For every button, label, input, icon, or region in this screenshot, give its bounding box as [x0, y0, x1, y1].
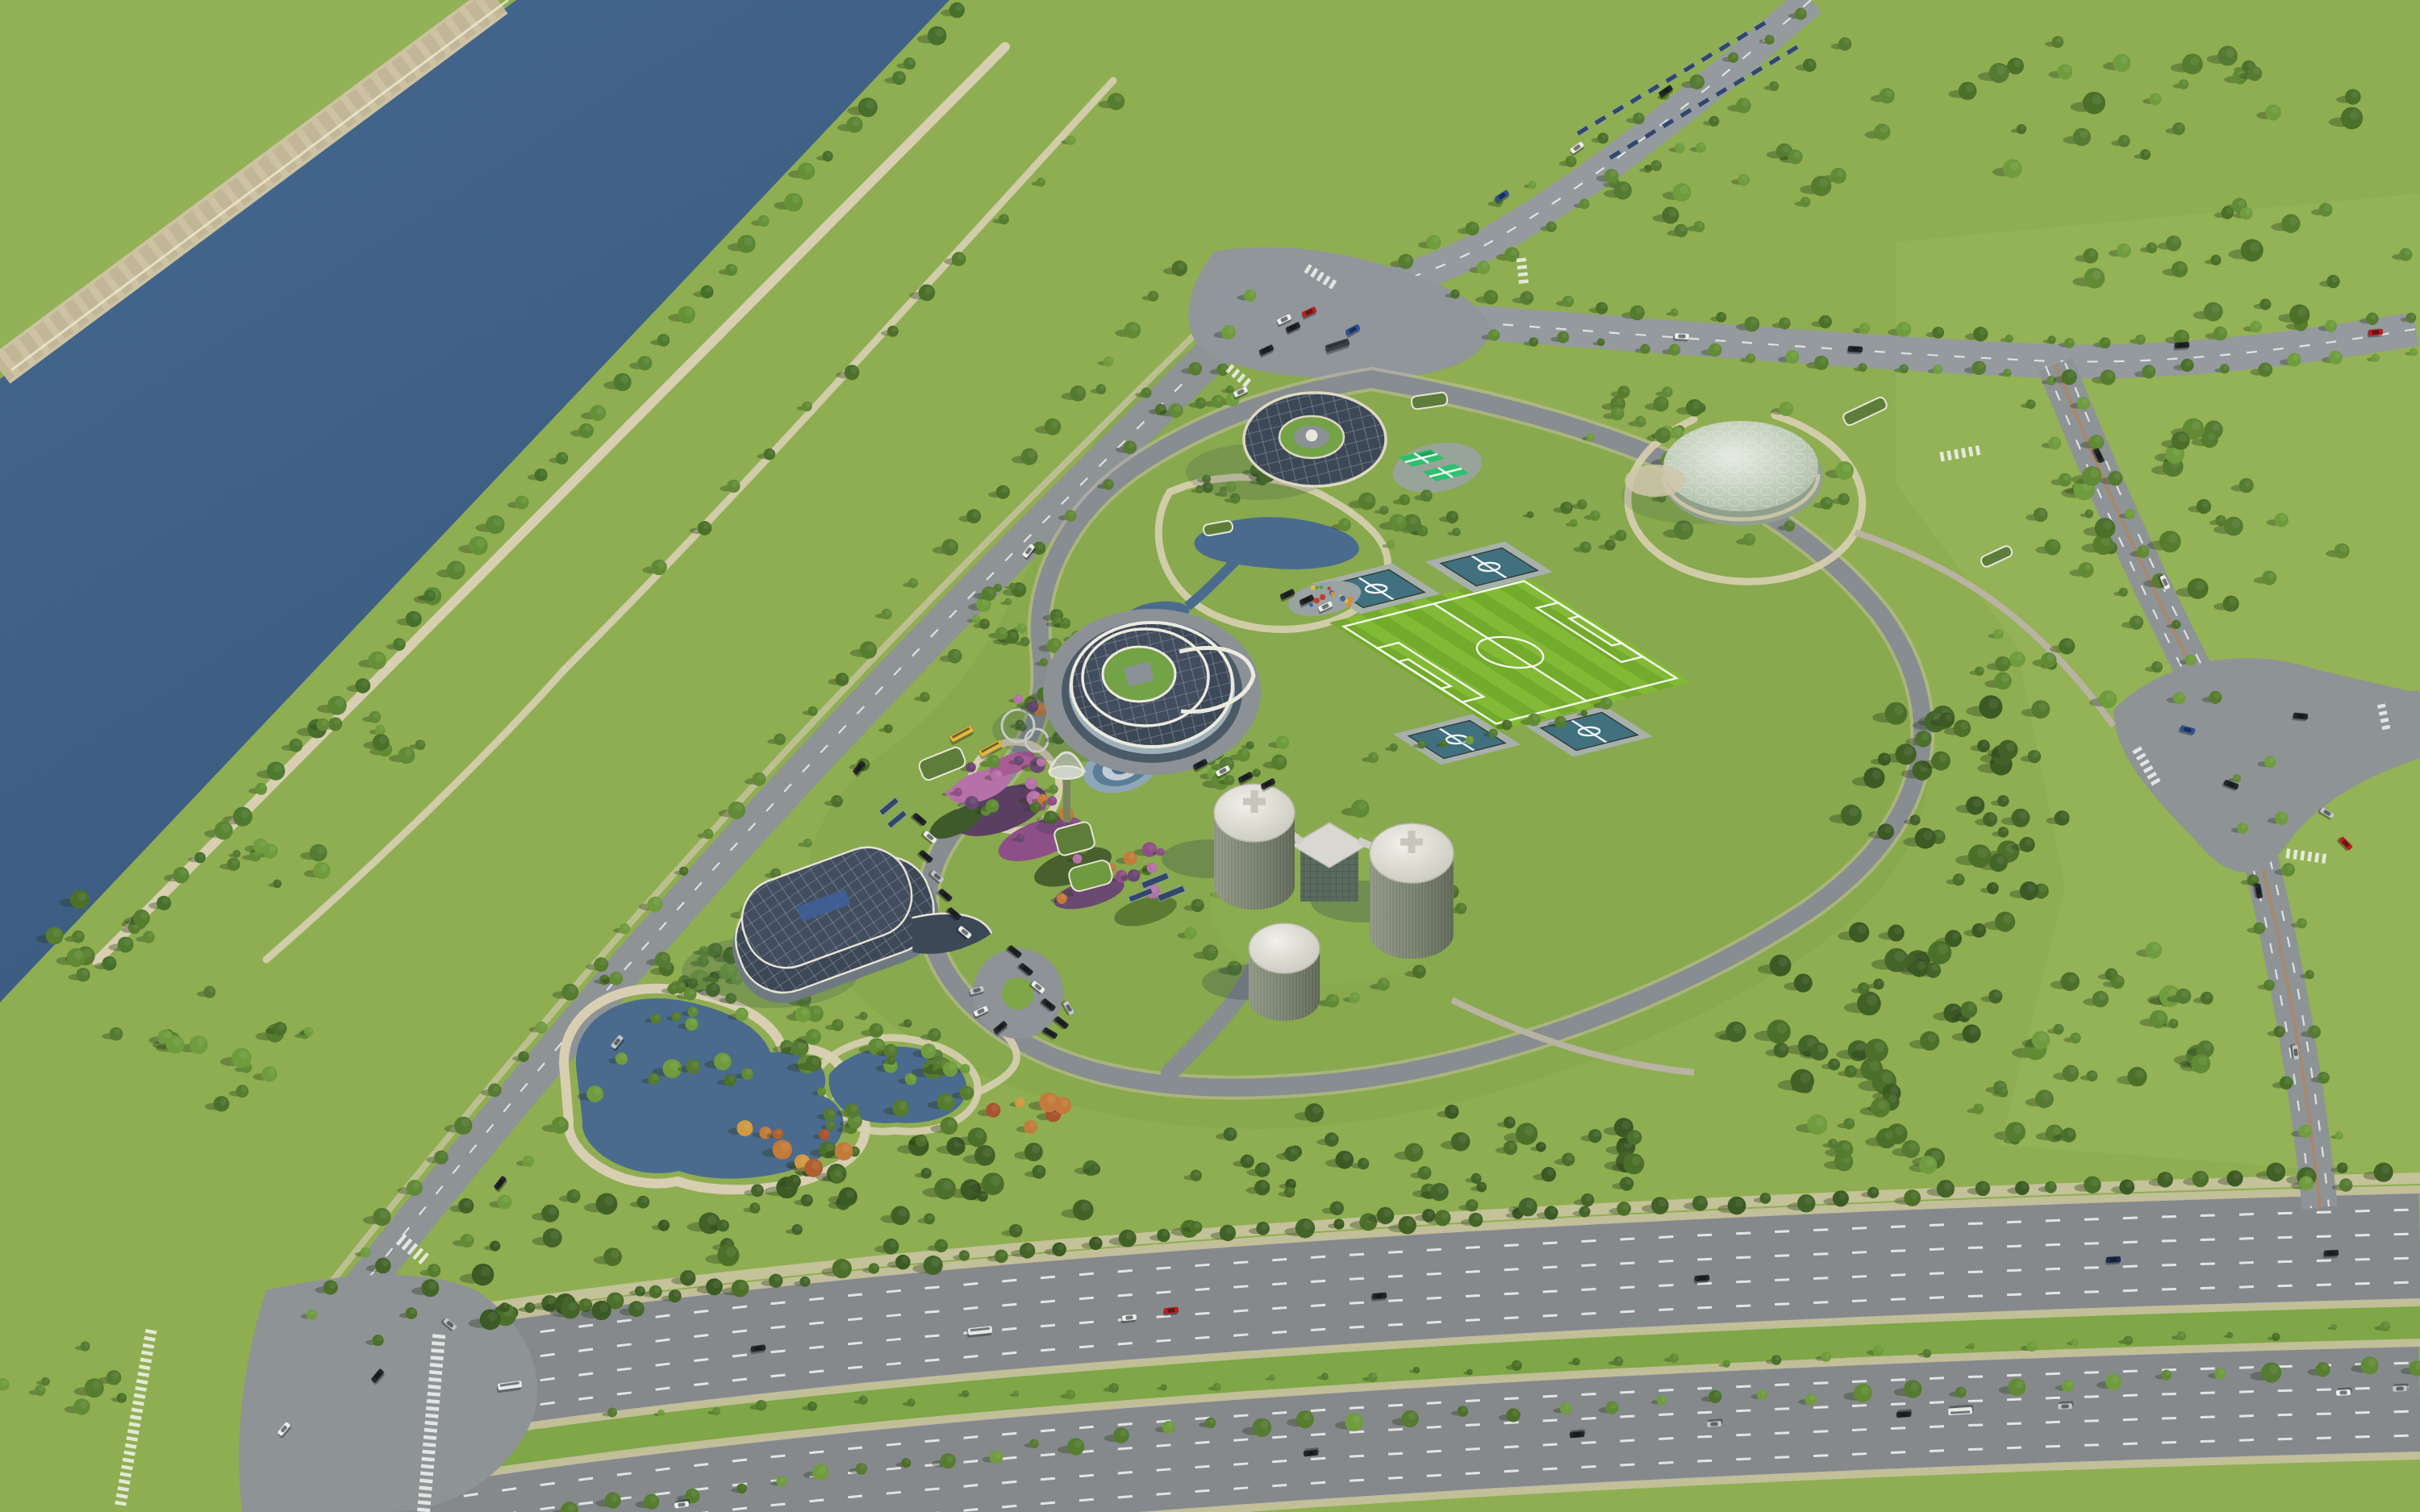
aerial-render: [0, 0, 2420, 1512]
car: [2105, 1256, 2121, 1265]
tower-stem: [1063, 773, 1070, 823]
dome-entry-plaza: [1625, 464, 1686, 497]
car: [2292, 712, 2308, 721]
playground-item: [1316, 586, 1319, 589]
playground-item: [1311, 585, 1316, 590]
playground-item: [1320, 585, 1324, 589]
silo-dome: [1249, 923, 1320, 973]
car: [2058, 1401, 2074, 1410]
playground-item: [1340, 596, 1346, 602]
car: [1707, 1418, 1723, 1427]
tower-crown-rim: [1049, 766, 1083, 779]
oval-cylinder-tower: [1306, 430, 1318, 442]
car: [1570, 1429, 1586, 1438]
car: [2367, 329, 2383, 338]
car: [2173, 342, 2189, 351]
playground-item: [1330, 591, 1334, 595]
car: [2336, 1387, 2352, 1396]
car: [1693, 1275, 1709, 1284]
spiral-hq-building: [1043, 609, 1261, 775]
car: [2393, 1383, 2409, 1392]
parking-island: [1002, 977, 1034, 1010]
car: [1896, 1409, 1913, 1418]
bus: [1948, 1405, 1974, 1416]
car: [1673, 333, 1689, 342]
playground-item: [1320, 594, 1325, 600]
car: [1371, 1293, 1387, 1302]
aerial-render-page: [0, 0, 2420, 1512]
playground-item: [1346, 602, 1351, 607]
playground-item: [1314, 598, 1320, 603]
dome-bump-texture: [1663, 421, 1818, 511]
car: [1846, 346, 1863, 355]
playground-item: [1327, 586, 1330, 589]
car: [2322, 1250, 2339, 1259]
oval-ring-building: [1244, 393, 1386, 486]
